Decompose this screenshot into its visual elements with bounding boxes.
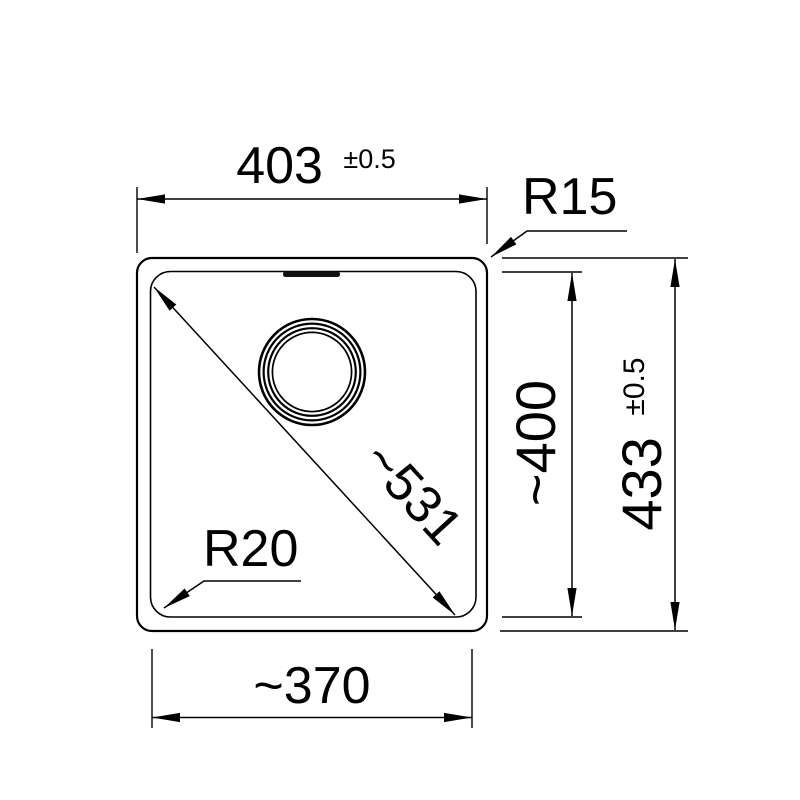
dim-label-height-overall: 433 ±0.5 xyxy=(610,357,673,530)
dim-width-overall: 403 ±0.5 xyxy=(137,137,487,253)
dim-tolerance: ±0.5 xyxy=(618,357,651,415)
drain-ring-3 xyxy=(268,328,356,416)
dim-depth-inner: ~400 xyxy=(502,272,582,617)
drain-ring-1 xyxy=(259,319,365,425)
dim-radius-inner: R20 xyxy=(164,520,301,608)
dim-radius-outer: R15 xyxy=(491,168,627,257)
dim-value: 433 xyxy=(610,437,673,530)
leader-line xyxy=(164,581,301,608)
dim-label-diagonal: ~531 xyxy=(352,431,474,557)
dim-diagonal: ~531 xyxy=(154,287,473,615)
dim-label-depth-inner: ~400 xyxy=(504,380,567,506)
drain-ring-4 xyxy=(272,332,351,411)
dim-label-radius-outer: R15 xyxy=(522,168,617,226)
technical-drawing-svg: 403 ±0.5 R15 433 ±0.5 ~400 xyxy=(0,0,800,800)
drain-circle xyxy=(259,319,365,425)
drawing-canvas: 403 ±0.5 R15 433 ±0.5 ~400 xyxy=(0,0,800,800)
dim-tolerance: ±0.5 xyxy=(343,144,395,174)
dim-width-inner: ~370 xyxy=(152,649,472,728)
drain-ring-2 xyxy=(264,324,361,421)
sink-outline xyxy=(137,258,487,631)
dim-value: 403 xyxy=(236,137,323,195)
dim-label-width-inner: ~370 xyxy=(253,657,370,715)
overflow-slot xyxy=(283,272,340,278)
sink-outer-rim xyxy=(137,258,487,631)
dim-label-radius-inner: R20 xyxy=(203,520,298,578)
dim-label-width-overall: 403 ±0.5 xyxy=(236,137,396,195)
leader-line xyxy=(491,231,627,257)
